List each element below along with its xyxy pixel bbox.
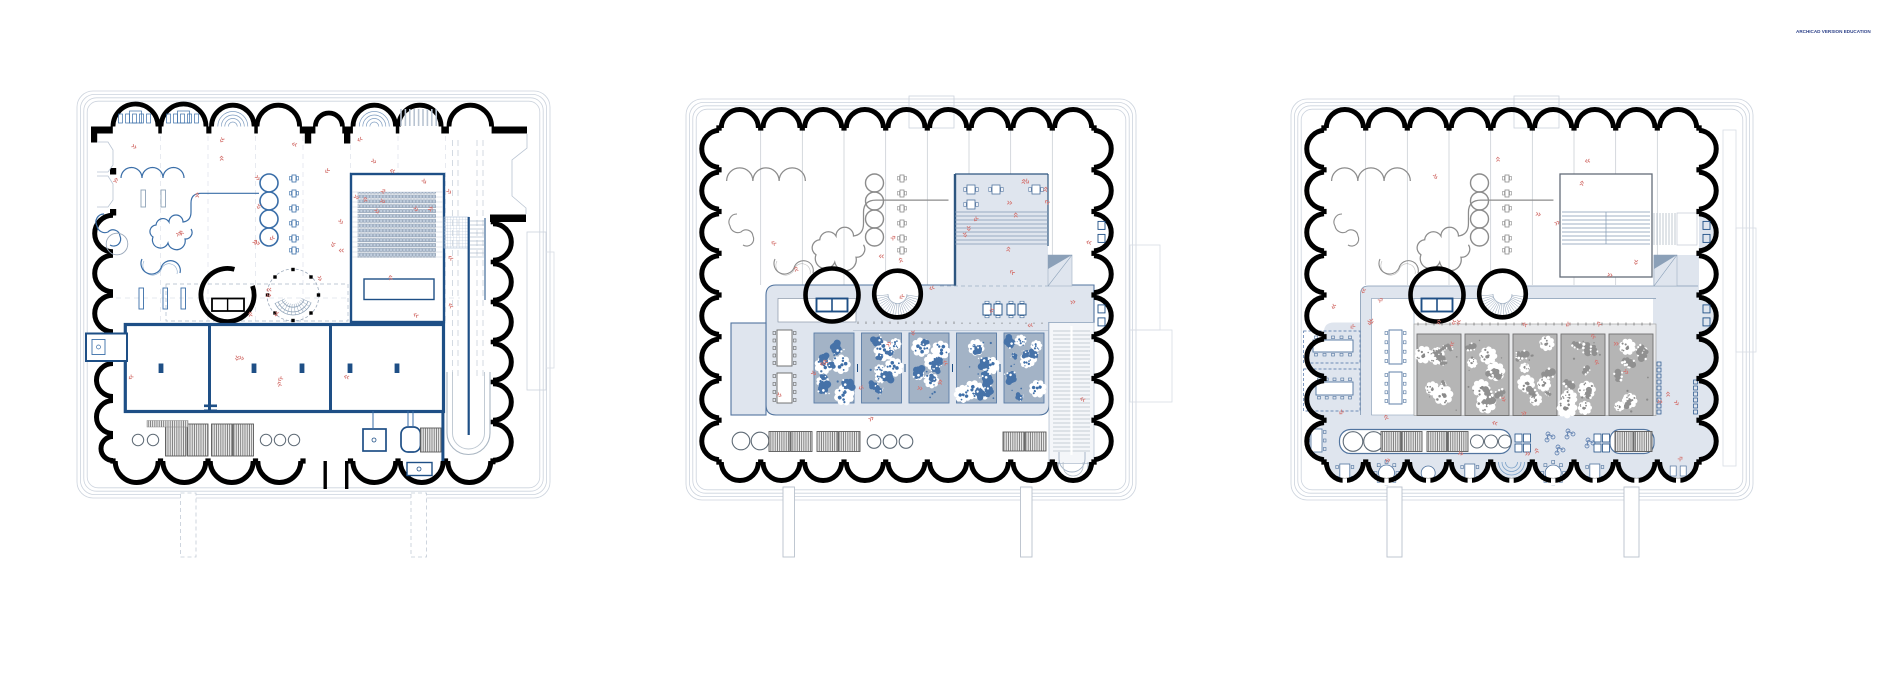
svg-text:ARCHICAD VERSION EDUCATION: ARCHICAD VERSION EDUCATION bbox=[1796, 29, 1871, 34]
